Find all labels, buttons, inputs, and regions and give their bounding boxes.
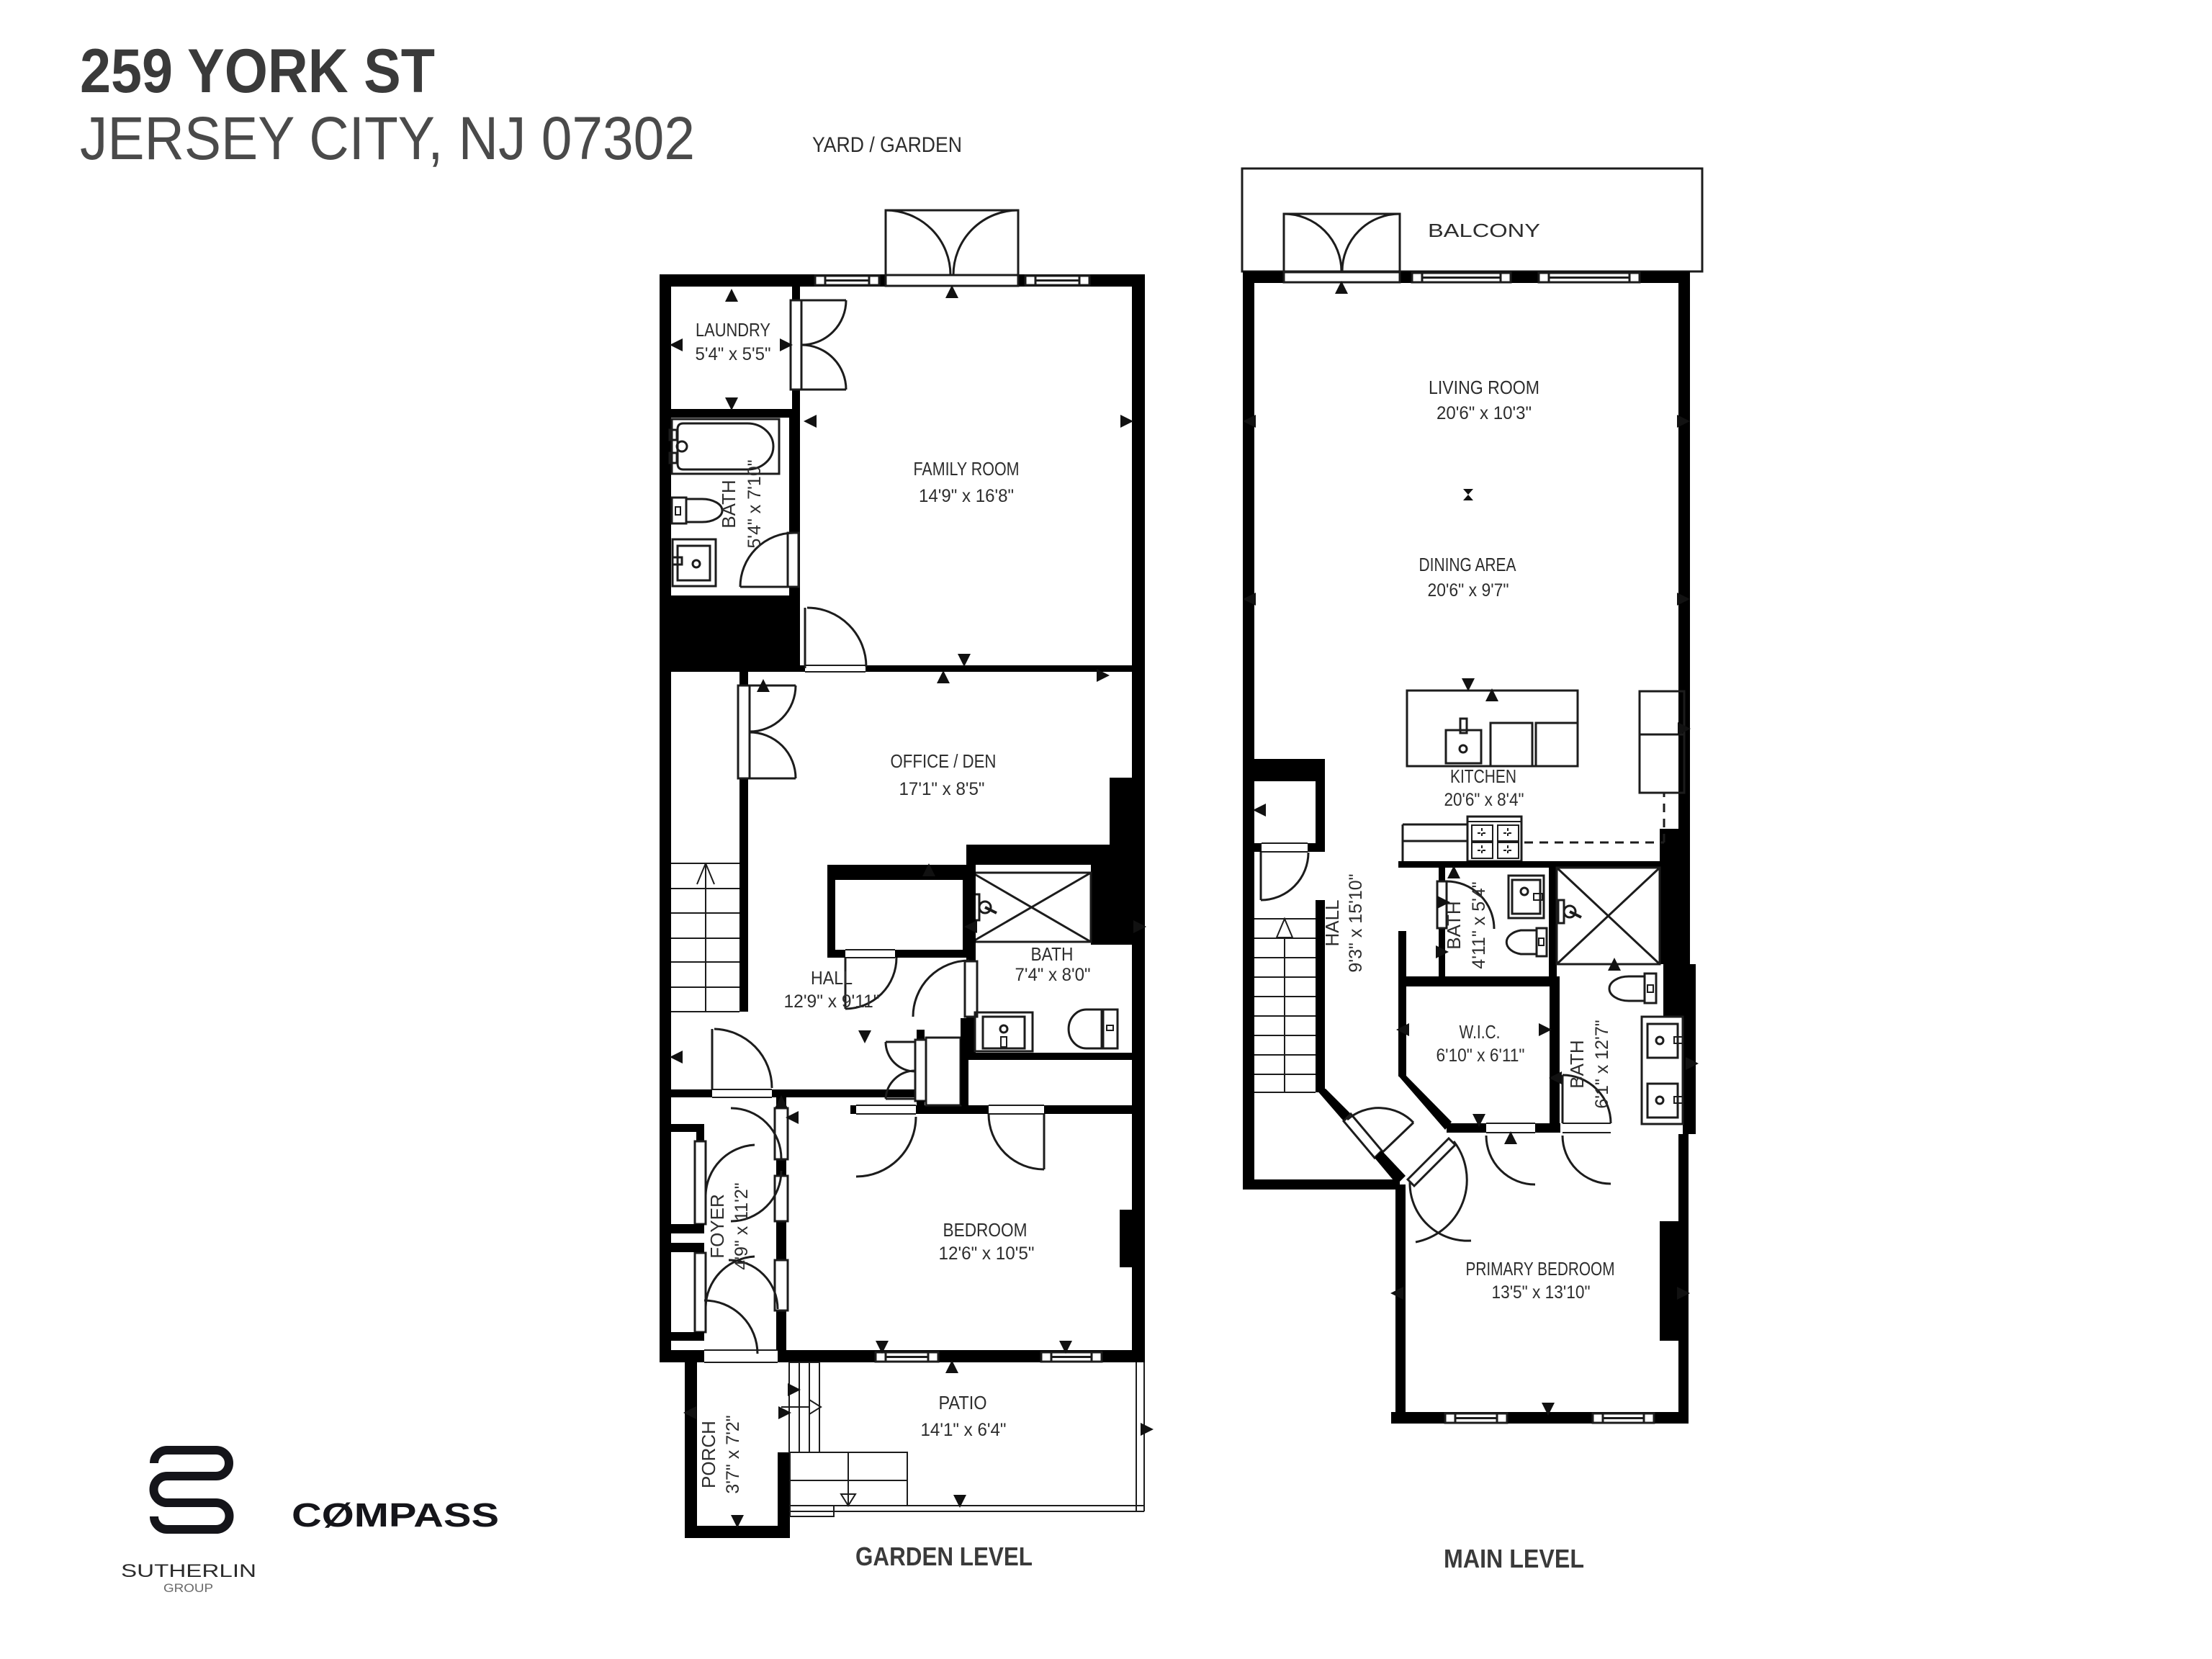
- svg-text:GROUP: GROUP: [163, 1581, 213, 1595]
- svg-text:9'3" x 15'10": 9'3" x 15'10": [1346, 873, 1366, 972]
- svg-text:BATH: BATH: [718, 480, 739, 528]
- svg-text:12'6" x 10'5": 12'6" x 10'5": [939, 1244, 1035, 1264]
- svg-text:FAMILY ROOM: FAMILY ROOM: [914, 458, 1020, 480]
- svg-text:CØMPASS: CØMPASS: [292, 1496, 499, 1534]
- svg-text:4'11" x 5'4": 4'11" x 5'4": [1469, 881, 1489, 968]
- svg-text:14'9" x 16'8": 14'9" x 16'8": [919, 486, 1014, 506]
- svg-text:OFFICE / DEN: OFFICE / DEN: [891, 750, 997, 772]
- svg-text:12'9" x 9'11": 12'9" x 9'11": [784, 992, 880, 1012]
- svg-text:LIVING ROOM: LIVING ROOM: [1429, 377, 1539, 398]
- svg-text:MAIN LEVEL: MAIN LEVEL: [1444, 1544, 1584, 1573]
- svg-text:20'6" x 9'7": 20'6" x 9'7": [1428, 580, 1509, 601]
- svg-text:W.I.C.: W.I.C.: [1460, 1021, 1501, 1043]
- svg-text:7'4" x 8'0": 7'4" x 8'0": [1015, 965, 1091, 985]
- svg-text:GARDEN LEVEL: GARDEN LEVEL: [855, 1542, 1033, 1571]
- svg-text:BATH: BATH: [1443, 901, 1465, 949]
- svg-text:17'1" x 8'5": 17'1" x 8'5": [899, 779, 985, 799]
- svg-text:BATH: BATH: [1031, 943, 1074, 965]
- svg-text:YARD / GARDEN: YARD / GARDEN: [812, 133, 962, 157]
- svg-text:20'6" x 8'4": 20'6" x 8'4": [1444, 790, 1524, 810]
- svg-text:BEDROOM: BEDROOM: [943, 1219, 1028, 1241]
- svg-text:4'9" x 11'2": 4'9" x 11'2": [732, 1182, 752, 1269]
- svg-text:5'4" x 7'10": 5'4" x 7'10": [745, 459, 765, 548]
- svg-text:FOYER: FOYER: [706, 1194, 728, 1259]
- svg-text:6'10" x 6'11": 6'10" x 6'11": [1437, 1046, 1525, 1066]
- svg-text:6'1" x 12'7": 6'1" x 12'7": [1592, 1020, 1612, 1108]
- svg-text:SUTHERLIN: SUTHERLIN: [121, 1561, 256, 1581]
- svg-text:13'5" x 13'10": 13'5" x 13'10": [1492, 1282, 1591, 1303]
- svg-text:HALL: HALL: [811, 967, 853, 989]
- svg-text:20'6" x 10'3": 20'6" x 10'3": [1437, 403, 1532, 423]
- svg-text:14'1" x 6'4": 14'1" x 6'4": [921, 1420, 1007, 1440]
- svg-text:BATH: BATH: [1566, 1040, 1588, 1088]
- svg-text:JERSEY CITY, NJ 07302: JERSEY CITY, NJ 07302: [80, 104, 695, 172]
- svg-text:3'7" x 7'2": 3'7" x 7'2": [723, 1415, 743, 1493]
- svg-text:259 YORK ST: 259 YORK ST: [80, 37, 435, 106]
- svg-text:BALCONY: BALCONY: [1428, 220, 1540, 241]
- svg-text:PATIO: PATIO: [939, 1392, 987, 1413]
- svg-text:PRIMARY BEDROOM: PRIMARY BEDROOM: [1466, 1258, 1615, 1280]
- svg-text:DINING AREA: DINING AREA: [1419, 554, 1517, 575]
- svg-text:5'4" x 5'5": 5'4" x 5'5": [696, 344, 771, 364]
- svg-text:PORCH: PORCH: [698, 1421, 719, 1488]
- svg-text:LAUNDRY: LAUNDRY: [696, 319, 770, 341]
- svg-text:KITCHEN: KITCHEN: [1450, 765, 1516, 787]
- svg-text:HALL: HALL: [1321, 899, 1343, 946]
